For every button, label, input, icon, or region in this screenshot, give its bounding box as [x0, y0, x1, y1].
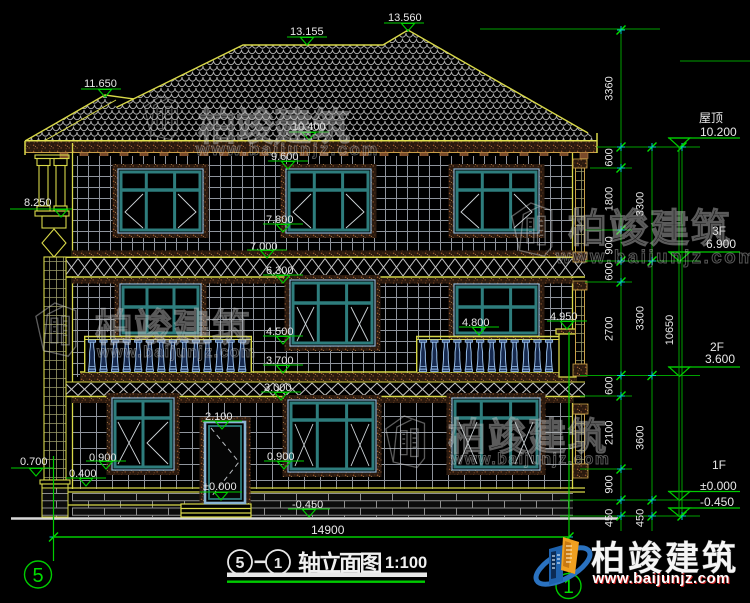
svg-text:2700: 2700 — [604, 317, 616, 341]
svg-text:11.650: 11.650 — [84, 78, 117, 90]
svg-text:轴立面图: 轴立面图 — [298, 550, 382, 576]
svg-text:450: 450 — [635, 509, 647, 527]
svg-text:www.baijunjz.com: www.baijunjz.com — [450, 451, 610, 468]
svg-text:-0.450: -0.450 — [700, 495, 734, 509]
svg-text:3360: 3360 — [604, 76, 616, 100]
svg-text:1: 1 — [274, 555, 282, 572]
svg-text:柏竣建筑: 柏竣建筑 — [568, 208, 732, 251]
svg-text:5: 5 — [236, 555, 245, 572]
svg-text:3300: 3300 — [635, 306, 647, 330]
svg-text:600: 600 — [604, 377, 616, 395]
svg-text:13.560: 13.560 — [388, 12, 422, 24]
svg-text:600: 600 — [604, 148, 616, 166]
svg-text:13.155: 13.155 — [290, 26, 324, 38]
svg-text:8.250: 8.250 — [24, 197, 52, 209]
svg-text:14900: 14900 — [311, 523, 345, 537]
svg-text:0.700: 0.700 — [20, 456, 48, 468]
svg-text:5: 5 — [32, 565, 43, 587]
svg-text:±0.000: ±0.000 — [203, 481, 237, 493]
svg-text:10.200: 10.200 — [700, 125, 737, 139]
svg-text:屋顶: 屋顶 — [699, 111, 723, 125]
svg-text:3.600: 3.600 — [705, 352, 735, 366]
svg-text:10650: 10650 — [664, 315, 676, 346]
svg-text:www.baijunjz.com: www.baijunjz.com — [195, 140, 380, 159]
svg-text:900: 900 — [604, 475, 616, 493]
svg-text:1:100: 1:100 — [385, 554, 427, 572]
svg-text:www.baijunjz.com: www.baijunjz.com — [555, 246, 750, 267]
svg-text:3600: 3600 — [635, 426, 647, 450]
svg-text:1F: 1F — [712, 458, 726, 472]
svg-text:450: 450 — [604, 509, 616, 527]
svg-text:www.baijunjz.com: www.baijunjz.com — [96, 344, 256, 361]
svg-text:www.baijunjz.com: www.baijunjz.com — [592, 570, 730, 587]
